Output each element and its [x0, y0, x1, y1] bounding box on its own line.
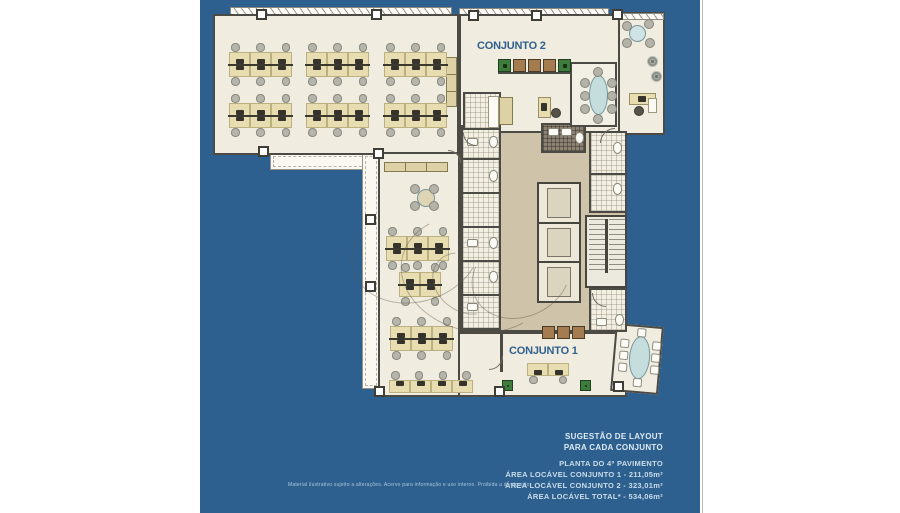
restroom-top-right: [589, 131, 627, 213]
desk-block: [527, 363, 569, 376]
desk: [411, 326, 432, 339]
office-chair: [256, 77, 265, 86]
chair-row: [229, 94, 292, 103]
chair-row: [384, 77, 447, 86]
desk-block: [389, 380, 473, 393]
chair-row: [306, 128, 369, 137]
column: [258, 146, 269, 157]
desk: [548, 363, 569, 376]
pantry-counter: [488, 96, 499, 128]
column: [256, 9, 267, 20]
desk: [348, 116, 369, 129]
desk: [271, 116, 292, 129]
desk: [306, 103, 327, 116]
elevator: [537, 182, 581, 224]
cabinet-brown: [557, 326, 570, 339]
office-chair: [308, 77, 317, 86]
stair-flight: [609, 219, 625, 273]
wing-chair: [622, 38, 632, 48]
desk: [426, 116, 447, 129]
chair-row: [527, 376, 569, 385]
sink: [596, 318, 607, 326]
plant: [647, 56, 658, 67]
desk: [384, 52, 405, 65]
desk: [390, 326, 411, 339]
column: [373, 148, 384, 159]
toilet: [615, 314, 624, 326]
office-chair: [437, 94, 446, 103]
wing-chair: [622, 21, 632, 31]
toilet: [489, 170, 498, 182]
meeting-table-conjunto1: [627, 335, 652, 380]
wing-chair: [644, 19, 654, 29]
desk-block: [229, 52, 292, 77]
round-table-chair: [429, 184, 439, 194]
office-chair: [231, 77, 240, 86]
toilet: [613, 183, 622, 195]
cabinet-brown: [543, 59, 556, 72]
desk: [327, 65, 348, 78]
desk-block: [384, 103, 447, 128]
reception-desk: [538, 97, 551, 118]
desk: [306, 116, 327, 129]
meeting-chair: [593, 114, 603, 124]
footer-suggestion-line2: PARA CADA CONJUNTO: [505, 442, 663, 453]
desk-block: [306, 103, 369, 128]
office-chair: [333, 77, 342, 86]
meeting-chair: [580, 78, 590, 88]
meeting-chair: [650, 365, 660, 375]
desk-cluster: [306, 43, 369, 86]
disclaimer-text: Material ilustrativo sujeito a alteraçõe…: [288, 482, 531, 488]
round-table-chair: [410, 184, 420, 194]
cabinet-green: [498, 59, 511, 72]
office-chair: [437, 77, 446, 86]
chair-row: [229, 43, 292, 52]
office-chair: [282, 77, 291, 86]
desk: [250, 103, 271, 116]
column: [365, 281, 376, 292]
meeting-chair: [651, 353, 661, 363]
desk: [452, 380, 473, 393]
wing-desk-return: [648, 98, 657, 113]
desk: [426, 52, 447, 65]
office-chair: [359, 128, 368, 137]
column: [374, 386, 385, 397]
meeting-chair: [652, 341, 662, 351]
desk-chair-mark: [541, 103, 547, 111]
desk-block: [390, 326, 453, 351]
desk: [405, 52, 426, 65]
column: [371, 9, 382, 20]
desk: [426, 103, 447, 116]
desk-cluster: [229, 94, 292, 137]
office-chair: [411, 43, 420, 52]
desk-cluster: [384, 94, 447, 137]
chair-row: [390, 351, 453, 360]
desk: [229, 52, 250, 65]
partition-wall: [500, 332, 503, 372]
chair-row: [389, 371, 473, 380]
office-chair: [392, 351, 401, 360]
desk: [527, 363, 548, 376]
desk: [426, 65, 447, 78]
desk: [250, 116, 271, 129]
pantry: [463, 92, 501, 130]
desk-cluster: [306, 94, 369, 137]
meeting-table-conjunto2: [589, 75, 608, 115]
office-chair: [411, 77, 420, 86]
office-chair: [411, 128, 420, 137]
meeting-chair: [607, 104, 617, 114]
office-chair: [417, 351, 426, 360]
office-chair: [282, 94, 291, 103]
desk: [384, 116, 405, 129]
desk: [348, 65, 369, 78]
desk: [229, 65, 250, 78]
column: [468, 10, 479, 21]
meeting-chair: [637, 328, 647, 338]
footer-suggestion-line1: SUGESTÃO DE LAYOUT: [505, 431, 663, 442]
chair-row: [384, 94, 447, 103]
desk: [348, 103, 369, 116]
office-chair: [386, 77, 395, 86]
cabinet-brown: [513, 59, 526, 72]
office-chair: [308, 94, 317, 103]
footer-area-total: ÁREA LOCÁVEL TOTAL* - 534,06m²: [505, 491, 663, 502]
office-chair: [443, 351, 452, 360]
chair-row: [229, 77, 292, 86]
desk: [405, 116, 426, 129]
footer-area-conjunto1: ÁREA LOCÁVEL CONJUNTO 1 - 211,05m²: [505, 469, 663, 480]
office-chair: [386, 94, 395, 103]
column: [531, 10, 542, 21]
office-chair: [308, 43, 317, 52]
chair-row: [384, 128, 447, 137]
office-chair: [333, 94, 342, 103]
office-chair: [391, 371, 400, 380]
meeting-chair: [607, 78, 617, 88]
partition-wall: [457, 14, 460, 155]
desk: [405, 103, 426, 116]
footer-text-block: SUGESTÃO DE LAYOUT PARA CADA CONJUNTO PL…: [505, 431, 663, 502]
meeting-chair: [580, 104, 590, 114]
office-chair: [333, 128, 342, 137]
desk: [432, 326, 453, 339]
office-chair: [411, 94, 420, 103]
meeting-chair: [619, 350, 629, 360]
staircase: [585, 215, 627, 288]
desk: [405, 65, 426, 78]
desk: [327, 103, 348, 116]
chair-row: [384, 43, 447, 52]
wing-facade-hatch: [619, 13, 664, 20]
wing-top-right: [618, 12, 665, 135]
desk-cluster: [384, 43, 447, 86]
office-chair: [256, 43, 265, 52]
office-chair: [392, 317, 401, 326]
office-chair: [359, 77, 368, 86]
office-chair: [333, 43, 342, 52]
desk: [306, 65, 327, 78]
office-chair: [256, 128, 265, 137]
cabinet-green: [580, 380, 591, 391]
cabinet-green: [558, 59, 571, 72]
office-chair: [529, 376, 538, 385]
office-chair: [231, 43, 240, 52]
wing-desk-chair: [634, 106, 644, 116]
office-chair: [359, 43, 368, 52]
screenshot-root: CONJUNTO 2 CONJUNTO 1 SUGESTÃO DE LAYOUT…: [0, 0, 900, 513]
toilet: [613, 142, 622, 154]
column: [613, 381, 624, 392]
column: [494, 386, 505, 397]
column: [612, 9, 623, 20]
wing-chair: [645, 38, 655, 48]
meeting-chair: [633, 378, 643, 388]
desk: [250, 65, 271, 78]
chair-row: [229, 128, 292, 137]
toilet: [575, 132, 584, 144]
desk: [271, 103, 292, 116]
desk: [306, 52, 327, 65]
desk: [229, 103, 250, 116]
desk: [431, 380, 452, 393]
desk: [384, 103, 405, 116]
desk: [390, 339, 411, 352]
stair-flight: [589, 219, 605, 273]
column: [365, 214, 376, 225]
desk: [327, 52, 348, 65]
office-chair: [386, 43, 395, 52]
desk-bench: [527, 363, 569, 385]
desk: [271, 52, 292, 65]
cabinet-brown: [528, 59, 541, 72]
office-chair: [256, 94, 265, 103]
sink: [561, 128, 572, 136]
stair-divider: [605, 219, 608, 273]
desk: [410, 380, 431, 393]
conjunto2-label: CONJUNTO 2: [477, 40, 546, 52]
chair-row: [306, 77, 369, 86]
office-chair: [437, 128, 446, 137]
meeting-chair: [620, 338, 630, 348]
cabinet-brown: [572, 326, 585, 339]
footer-plan-title: PLANTA DO 4º PAVIMENTO: [505, 458, 663, 469]
desk: [389, 380, 410, 393]
page-edge-line: [702, 0, 703, 513]
reception-chair: [551, 108, 561, 118]
desk-block: [306, 52, 369, 77]
office-chair: [462, 371, 471, 380]
office-chair: [282, 128, 291, 137]
office-chair: [559, 376, 568, 385]
chair-row: [306, 43, 369, 52]
desk: [271, 65, 292, 78]
desk-cluster: [229, 43, 292, 86]
desk: [384, 65, 405, 78]
desk: [327, 116, 348, 129]
office-chair: [386, 128, 395, 137]
cabinet-brown: [542, 326, 555, 339]
meeting-chair: [607, 91, 617, 101]
office-chair: [231, 94, 240, 103]
meeting-chair: [593, 67, 603, 77]
toilet: [489, 136, 498, 148]
office-chair: [439, 371, 448, 380]
office-chair: [417, 317, 426, 326]
office-chair: [437, 43, 446, 52]
office-chair: [308, 128, 317, 137]
plant: [651, 71, 662, 82]
conjunto1-label: CONJUNTO 1: [509, 345, 578, 357]
tall-cabinet: [499, 97, 513, 125]
office-chair: [282, 43, 291, 52]
meeting-room-conjunto2: [570, 62, 617, 127]
desk-block: [229, 103, 292, 128]
meeting-chair: [618, 362, 628, 372]
desk: [432, 339, 453, 352]
desk-bench: [389, 371, 473, 393]
office-chair: [359, 94, 368, 103]
desk: [250, 52, 271, 65]
sink: [548, 128, 559, 136]
desk: [348, 52, 369, 65]
desk: [411, 339, 432, 352]
desk-block: [384, 52, 447, 77]
meeting-chair: [580, 91, 590, 101]
office-chair: [415, 371, 424, 380]
cabinet-row: [384, 162, 448, 172]
service-bathroom: [541, 123, 586, 153]
office-chair: [231, 128, 240, 137]
desk: [229, 116, 250, 129]
chair-row: [306, 94, 369, 103]
desk-chair-mark: [638, 96, 646, 102]
